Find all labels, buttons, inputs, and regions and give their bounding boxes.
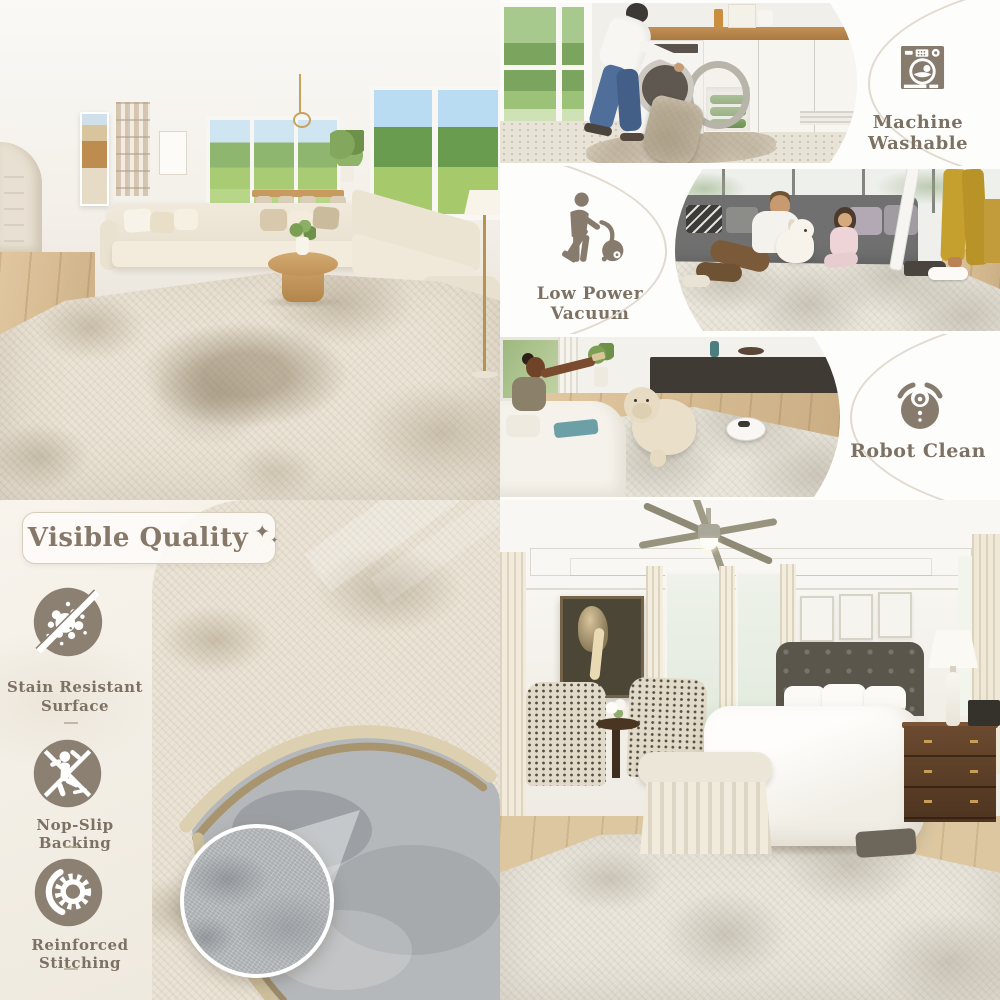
stain-resistant-icon <box>32 586 104 658</box>
robot-vacuum-icon <box>894 380 946 432</box>
floor-lamp-pole <box>483 215 486 373</box>
dresser <box>904 726 996 822</box>
reinforced-stitching-icon <box>33 857 104 928</box>
girl-face <box>838 213 852 227</box>
floor-lamp-shade <box>464 190 500 215</box>
sofa-pillow <box>149 211 175 233</box>
lounge-photo <box>500 337 852 497</box>
jug <box>758 10 773 26</box>
washing-machine-icon <box>899 44 946 91</box>
family-photo <box>652 169 1000 331</box>
dog-paw <box>650 449 666 467</box>
woman-torso <box>512 377 546 411</box>
drawer-handle <box>924 770 932 773</box>
detergent-box <box>728 4 756 28</box>
pillow-geometric <box>686 205 722 233</box>
slipper <box>682 275 710 287</box>
flowers <box>604 698 630 720</box>
drawer-handle <box>924 740 932 743</box>
armchair <box>526 682 606 786</box>
woman-hand <box>674 63 684 72</box>
rug-medallion <box>95 300 395 470</box>
divider-tick <box>64 968 78 970</box>
coffee-table-top <box>268 252 338 276</box>
bookshelf <box>116 102 150 196</box>
puppy-head <box>790 219 814 241</box>
counter <box>628 27 870 40</box>
sofa-pillow <box>174 209 198 230</box>
drawer-handle <box>924 800 932 803</box>
art-frame <box>878 592 912 638</box>
sofa-pillow <box>506 415 540 437</box>
puppy-nose <box>804 229 807 232</box>
ankle <box>948 257 962 267</box>
plant-pot <box>341 166 354 182</box>
laundry-photo <box>500 3 870 163</box>
robot-clean-label: Robot Clean <box>836 440 1000 462</box>
bottle <box>714 9 723 28</box>
vase <box>296 237 309 255</box>
wall-art <box>80 112 109 206</box>
robot-clean-band: Robot Clean <box>500 334 1000 500</box>
machine-washable-band: Machine Washable <box>500 0 1000 166</box>
sparkle-large: ✦ <box>254 521 270 543</box>
dog-eye <box>646 399 649 402</box>
side-table-leg <box>612 726 620 778</box>
arch-shelves <box>4 176 24 254</box>
dog-muzzle <box>632 403 652 419</box>
pendant-light <box>299 74 301 114</box>
white-sneaker <box>928 267 968 280</box>
visible-quality-panel: Visible Quality ✦ ✦ Stain Resista <box>0 500 500 1000</box>
sparkle-icon: ✦ ✦ <box>254 521 270 543</box>
decor-bowl <box>738 347 764 355</box>
title-pill: Visible Quality ✦ ✦ <box>22 512 276 564</box>
console-leg <box>840 393 843 403</box>
table-lamp-shade <box>928 630 978 668</box>
visible-quality-title: Visible Quality <box>28 523 249 553</box>
sparkle-small: ✦ <box>271 536 279 546</box>
bed-frame-foot <box>855 828 917 858</box>
tv-console <box>650 357 850 393</box>
machine-washable-label: Machine Washable <box>836 112 1000 154</box>
floor-lamp-base <box>472 371 498 378</box>
living-room-photo <box>0 0 500 500</box>
plant <box>330 130 364 166</box>
dog-eye <box>634 399 637 402</box>
yellow-chair <box>984 199 1000 263</box>
drawer-handle <box>970 740 978 743</box>
window-glass <box>374 90 432 214</box>
window-mullion <box>556 7 562 127</box>
plant-pot <box>594 367 608 387</box>
pendant-light-bulb <box>293 112 311 128</box>
divider-tick <box>64 722 78 724</box>
dark-box <box>968 700 1000 726</box>
bench-cushion <box>638 752 772 786</box>
window-glass <box>210 120 250 206</box>
drawer-handle <box>970 800 978 803</box>
robot-vacuum-button <box>738 421 750 427</box>
reinforced-stitching-label: Reinforced Stitching <box>0 936 160 972</box>
sofa-pillow <box>123 208 153 233</box>
art-frame <box>800 596 834 642</box>
rug-product-collage: Machine Washable Low Power Vacuum <box>0 0 1000 1000</box>
bench-pleated-skirt <box>640 782 772 854</box>
drawer-handle <box>970 770 978 773</box>
sofa-pillow <box>260 209 287 231</box>
bedroom-photo <box>500 500 1000 1000</box>
features-strip: Machine Washable Low Power Vacuum <box>500 0 1000 500</box>
sofa-pillow <box>312 206 340 230</box>
woman-jeans <box>616 68 642 131</box>
non-slip-icon <box>32 738 103 809</box>
divider-tick <box>64 846 78 848</box>
window-mullion <box>504 65 584 70</box>
teal-vase <box>710 341 719 357</box>
sandal <box>620 133 644 141</box>
low-power-vacuum-band: Low Power Vacuum <box>500 166 1000 334</box>
small-frame <box>159 131 187 175</box>
table-lamp-body <box>946 672 960 726</box>
stain-resistant-label: Stain Resistant Surface <box>0 678 150 716</box>
magnifier-circle <box>180 824 334 978</box>
art-frame <box>839 594 873 640</box>
